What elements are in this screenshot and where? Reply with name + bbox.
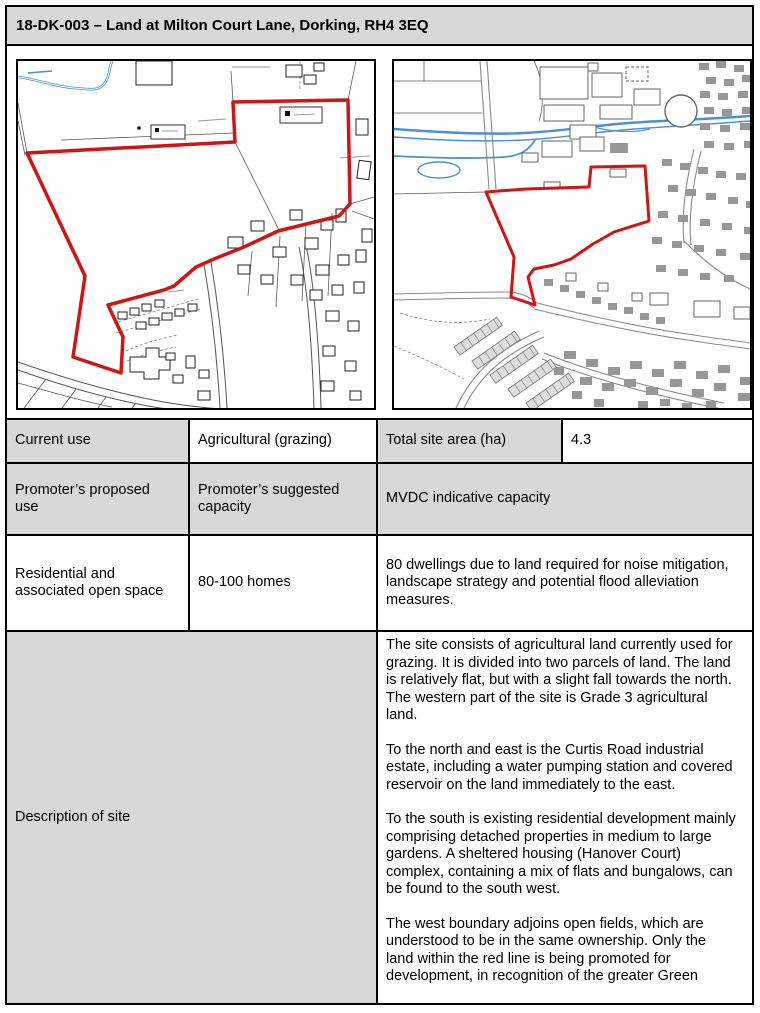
proposed-use-value: Residential and associated open space (7, 536, 190, 630)
buildings (118, 61, 372, 400)
site-boundary-map (16, 59, 376, 410)
description-paragraph-1: The site consists of agricultural land c… (386, 637, 736, 725)
current-use-value: Agricultural (grazing) (190, 420, 378, 462)
site-context-map-svg (394, 61, 750, 408)
suggested-capacity-label: Promoter’s suggested capacity (190, 464, 378, 534)
current-use-label: Current use (7, 420, 190, 462)
site-profile-document: 18-DK-003 – Land at Milton Court Lane, D… (5, 5, 754, 1005)
description-paragraph-2: To the north and east is the Curtis Road… (386, 742, 736, 795)
mvdc-capacity-value: 80 dwellings due to land required for no… (378, 536, 752, 630)
mvdc-capacity-label: MVDC indicative capacity (378, 464, 752, 534)
proposed-use-label: Promoter’s proposed use (7, 464, 190, 534)
roads (18, 245, 321, 408)
info-row-3: Residential and associated open space 80… (7, 536, 752, 632)
industrial-buildings (522, 63, 750, 319)
info-row-1: Current use Agricultural (grazing) Total… (7, 420, 752, 464)
description-text: The site consists of agricultural land c… (378, 632, 752, 1003)
total-site-area-label: Total site area (ha) (378, 420, 563, 462)
footpath-dashes (114, 61, 300, 363)
page-title: 18-DK-003 – Land at Milton Court Lane, D… (7, 7, 752, 46)
description-row: Description of site The site consists of… (7, 632, 752, 1003)
site-boundary-map-svg (18, 61, 374, 408)
info-row-2: Promoter’s proposed use Promoter’s sugge… (7, 464, 752, 536)
site-boundary-redline (27, 100, 350, 373)
pump-house-symbols (137, 107, 322, 139)
maps-row (7, 46, 752, 420)
footpath-dashes (394, 313, 490, 379)
suggested-capacity-value: 80-100 homes (190, 536, 378, 630)
description-paragraph-4: The west boundary adjoins open fields, w… (386, 916, 736, 986)
gas-holder-circle (665, 95, 697, 127)
field-boundary-lines (394, 61, 542, 194)
total-site-area-value: 4.3 (563, 420, 752, 462)
description-paragraph-3: To the south is existing residential dev… (386, 811, 736, 899)
site-context-map (392, 59, 752, 410)
stream (18, 61, 112, 89)
site-boundary-redline (486, 166, 649, 305)
description-label: Description of site (7, 632, 378, 1003)
